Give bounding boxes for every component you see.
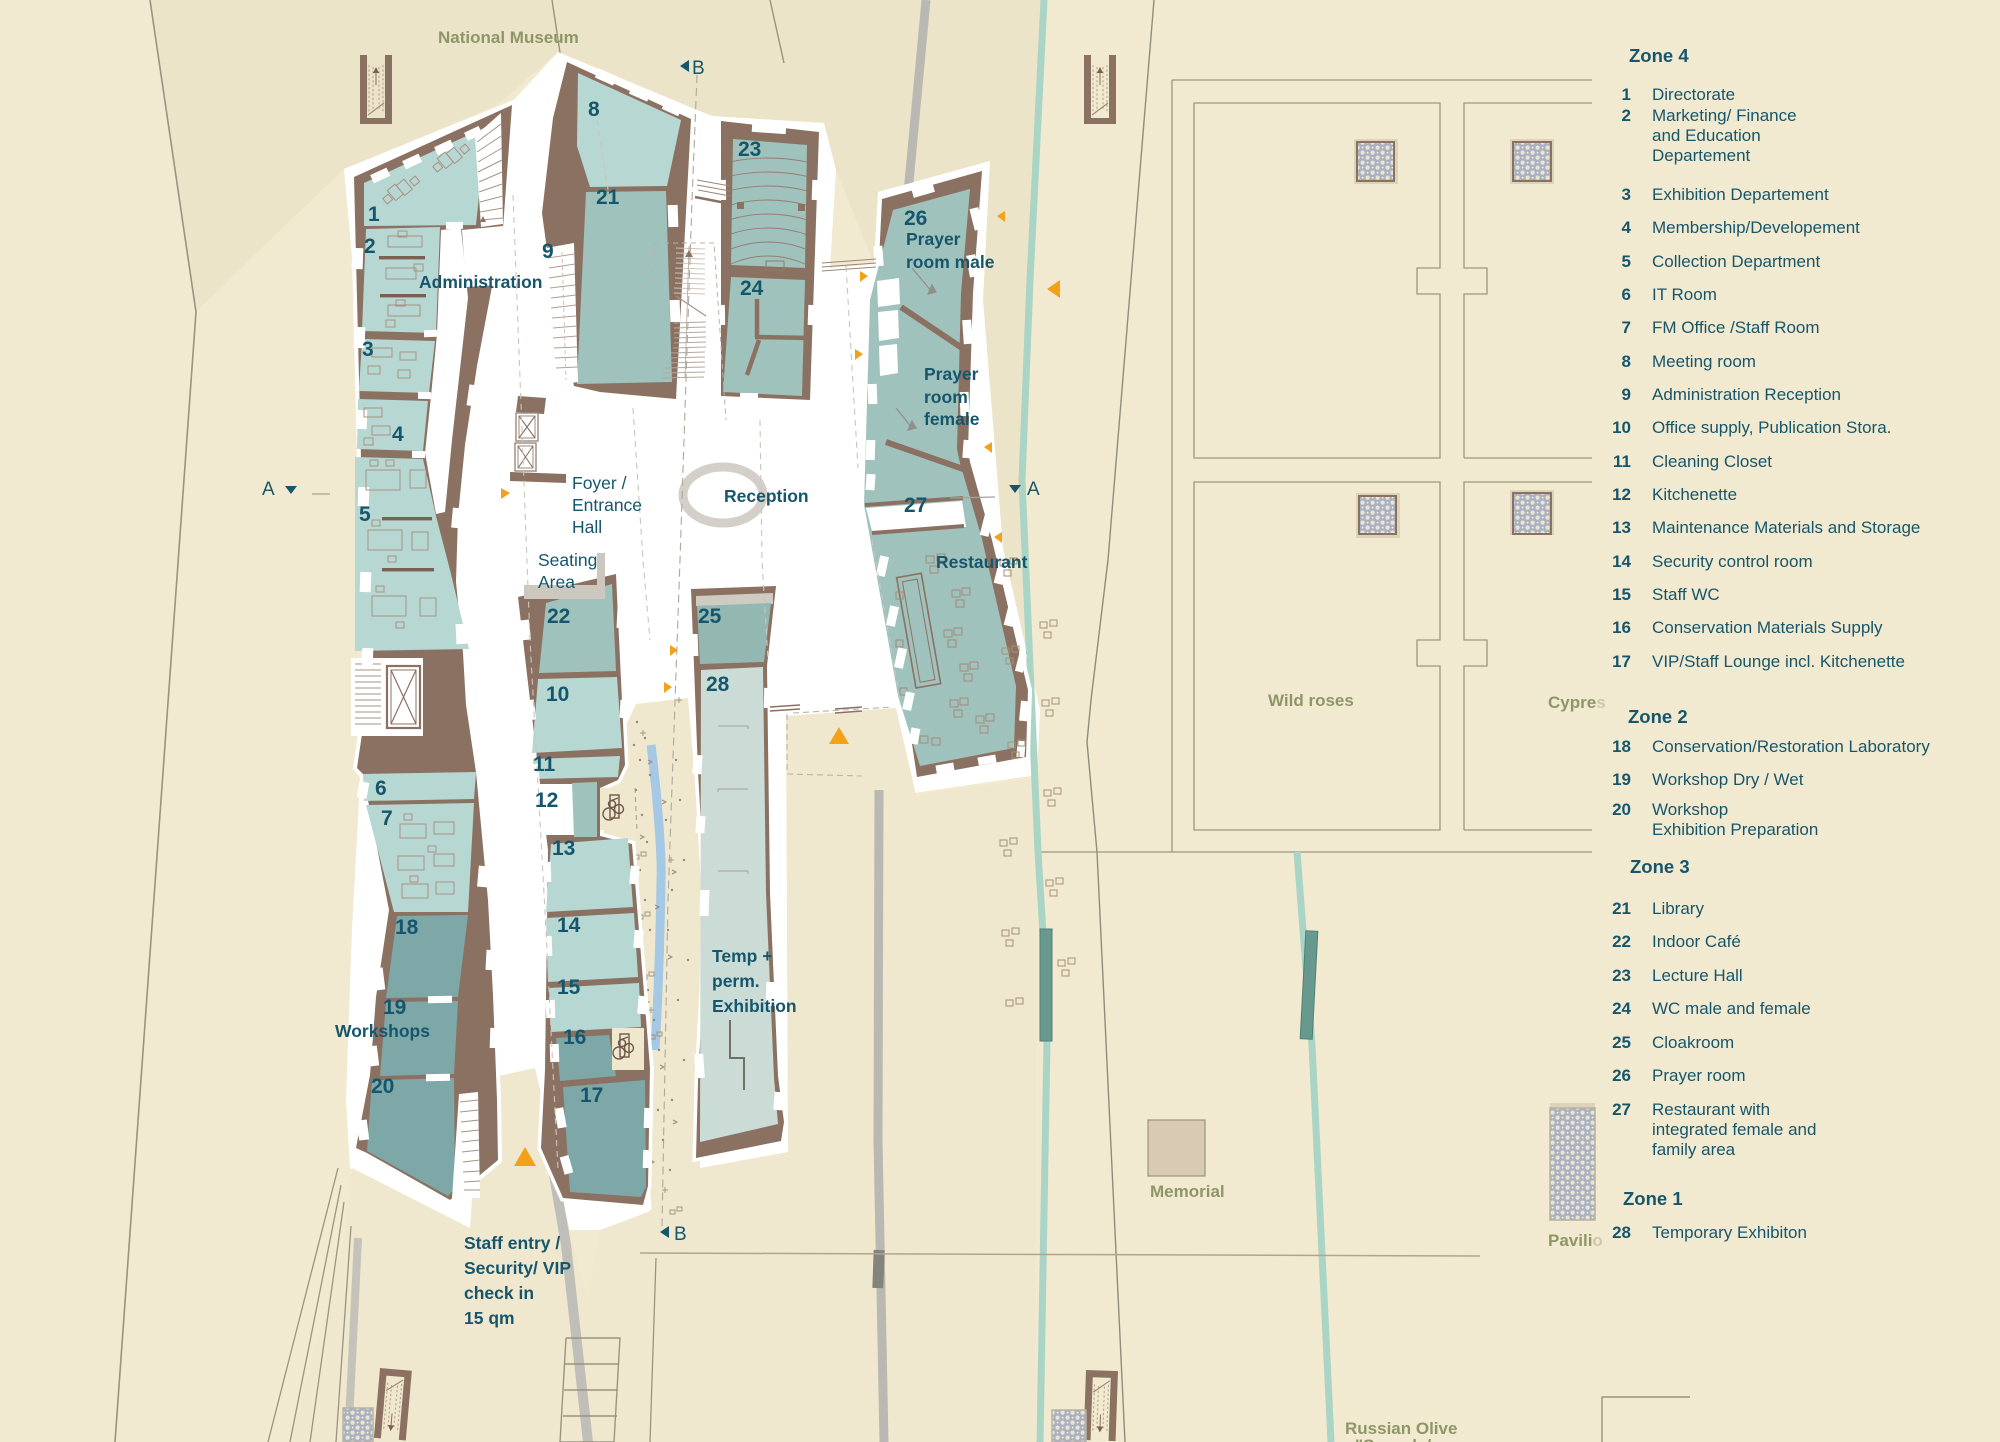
svg-text:19: 19 [383, 996, 406, 1019]
svg-text:Seating: Seating [538, 550, 597, 570]
svg-text:Foyer /: Foyer / [572, 473, 627, 493]
svg-text:5: 5 [1622, 252, 1631, 271]
svg-text:A: A [262, 479, 275, 500]
svg-text:VIP/Staff Lounge incl. Kitchen: VIP/Staff Lounge incl. Kitchenette [1652, 652, 1905, 671]
svg-text:Zone 1: Zone 1 [1623, 1188, 1683, 1209]
svg-text:25: 25 [698, 605, 722, 628]
svg-text:Zone 4: Zone 4 [1629, 45, 1689, 66]
svg-text:Security/ VIP: Security/ VIP [464, 1258, 571, 1278]
svg-text:perm.: perm. [712, 971, 760, 991]
svg-text:9: 9 [542, 240, 554, 263]
svg-text:27: 27 [904, 494, 927, 517]
svg-text:7: 7 [381, 807, 393, 830]
svg-text:11: 11 [1613, 452, 1631, 471]
svg-text:14: 14 [557, 914, 581, 937]
svg-text:family area: family area [1652, 1140, 1736, 1159]
svg-text:Kitchenette: Kitchenette [1652, 485, 1737, 504]
svg-text:17: 17 [1612, 652, 1631, 671]
svg-text:Prayer room: Prayer room [1652, 1066, 1746, 1085]
svg-text:24: 24 [740, 277, 764, 300]
svg-text:4: 4 [1622, 218, 1632, 237]
svg-text:16: 16 [1612, 618, 1631, 637]
svg-text:Temporary Exhibiton: Temporary Exhibiton [1652, 1223, 1807, 1242]
svg-text:Security control room: Security control room [1652, 552, 1813, 571]
svg-text:23: 23 [1612, 966, 1631, 985]
svg-text:12: 12 [535, 789, 558, 812]
svg-text:Library: Library [1652, 899, 1704, 918]
svg-text:9: 9 [1622, 385, 1631, 404]
svg-text:Prayer: Prayer [924, 364, 979, 384]
svg-text:22: 22 [1612, 932, 1631, 951]
svg-text:Workshop Dry / Wet: Workshop Dry / Wet [1652, 770, 1804, 789]
svg-text:Cleaning Closet: Cleaning Closet [1652, 452, 1772, 471]
svg-text:26: 26 [1612, 1066, 1631, 1085]
svg-text:B: B [674, 1224, 687, 1245]
svg-text:2: 2 [1622, 106, 1631, 125]
svg-text:26: 26 [904, 207, 927, 230]
svg-text:Zone 3: Zone 3 [1630, 856, 1690, 877]
svg-text:11: 11 [533, 753, 556, 776]
svg-text:Lecture Hall: Lecture Hall [1652, 966, 1743, 985]
svg-text:8: 8 [1622, 352, 1631, 371]
svg-text:Office supply, Publication Sto: Office supply, Publication Stora. [1652, 418, 1891, 437]
svg-text:13: 13 [552, 837, 575, 860]
svg-text:WC male and female: WC male and female [1652, 999, 1811, 1018]
svg-text:12: 12 [1612, 485, 1631, 504]
svg-text:3: 3 [362, 338, 374, 361]
svg-text:integrated female and: integrated female and [1652, 1120, 1816, 1139]
svg-text:Hall: Hall [572, 517, 602, 537]
svg-text:Indoor Café: Indoor Café [1652, 932, 1741, 951]
svg-text:Exhibition Departement: Exhibition Departement [1652, 185, 1829, 204]
svg-text:A: A [1027, 479, 1040, 500]
svg-text:16: 16 [563, 1026, 586, 1049]
svg-text:18: 18 [1612, 737, 1631, 756]
svg-text:7: 7 [1622, 318, 1631, 337]
svg-text:Conservation Materials Supply: Conservation Materials Supply [1652, 618, 1883, 637]
svg-text:4: 4 [392, 423, 404, 446]
svg-text:Reception: Reception [724, 486, 809, 506]
svg-text:Exhibition: Exhibition [712, 996, 797, 1016]
svg-text:20: 20 [1612, 800, 1631, 819]
svg-text:Prayer: Prayer [906, 229, 961, 249]
svg-text:21: 21 [1612, 899, 1631, 918]
svg-text:Conservation/Restoration Labor: Conservation/Restoration Laboratory [1652, 737, 1930, 756]
svg-text:8: 8 [588, 98, 600, 121]
svg-text:14: 14 [1612, 552, 1631, 571]
svg-text:13: 13 [1612, 518, 1631, 537]
svg-text:28: 28 [1612, 1223, 1631, 1242]
svg-text:5: 5 [359, 503, 371, 526]
svg-text:Staff entry /: Staff entry / [464, 1233, 560, 1253]
svg-text:Administration: Administration [419, 272, 542, 292]
svg-text:Maintenance Materials and Stor: Maintenance Materials and Storage [1652, 518, 1920, 537]
svg-text:17: 17 [580, 1084, 603, 1107]
svg-text:room: room [924, 387, 968, 407]
svg-text:25: 25 [1612, 1033, 1631, 1052]
svg-text:20: 20 [371, 1075, 394, 1098]
svg-text:Cypres: Cypres [1548, 693, 1606, 712]
svg-text:Area: Area [538, 572, 575, 592]
svg-text:check in: check in [464, 1283, 534, 1303]
svg-text:"Senzela/: "Senzela/ [1355, 1436, 1431, 1442]
svg-text:B: B [692, 58, 705, 79]
svg-text:Restaurant with: Restaurant with [1652, 1100, 1770, 1119]
svg-text:19: 19 [1612, 770, 1631, 789]
svg-text:Entrance: Entrance [572, 495, 642, 515]
svg-text:15: 15 [557, 976, 581, 999]
svg-text:Administration Reception: Administration Reception [1652, 385, 1841, 404]
svg-text:Wild roses: Wild roses [1268, 691, 1354, 710]
svg-text:15 qm: 15 qm [464, 1308, 515, 1328]
svg-text:21: 21 [596, 186, 620, 209]
svg-text:room male: room male [906, 252, 995, 272]
svg-text:Exhibition Preparation: Exhibition Preparation [1652, 820, 1818, 839]
svg-text:Marketing/ Finance: Marketing/ Finance [1652, 106, 1797, 125]
svg-text:and Education: and Education [1652, 126, 1761, 145]
svg-text:1: 1 [368, 203, 380, 226]
svg-text:10: 10 [1612, 418, 1631, 437]
svg-text:2: 2 [364, 235, 376, 258]
svg-text:Membership/Developement: Membership/Developement [1652, 218, 1860, 237]
svg-text:6: 6 [375, 777, 387, 800]
svg-text:Cloakroom: Cloakroom [1652, 1033, 1734, 1052]
svg-text:Staff WC: Staff WC [1652, 585, 1720, 604]
svg-text:15: 15 [1612, 585, 1631, 604]
svg-text:Directorate: Directorate [1652, 85, 1735, 104]
svg-text:Zone 2: Zone 2 [1628, 706, 1688, 727]
svg-text:Temp +: Temp + [712, 946, 772, 966]
svg-text:IT Room: IT Room [1652, 285, 1717, 304]
svg-text:22: 22 [547, 605, 570, 628]
svg-text:Memorial: Memorial [1150, 1182, 1225, 1201]
svg-text:National Museum: National Museum [438, 28, 579, 47]
svg-text:18: 18 [395, 916, 419, 939]
svg-text:Departement: Departement [1652, 146, 1751, 165]
svg-text:Workshop: Workshop [1652, 800, 1728, 819]
svg-text:Workshops: Workshops [335, 1021, 430, 1041]
svg-text:10: 10 [546, 683, 569, 706]
svg-text:Pavilio: Pavilio [1548, 1231, 1603, 1250]
svg-text:23: 23 [738, 138, 761, 161]
svg-text:24: 24 [1612, 999, 1631, 1018]
svg-text:Restaurant: Restaurant [936, 552, 1028, 572]
svg-text:28: 28 [706, 673, 730, 696]
svg-text:Meeting room: Meeting room [1652, 352, 1756, 371]
svg-text:Collection Department: Collection Department [1652, 252, 1820, 271]
svg-text:FM Office /Staff Room: FM Office /Staff Room [1652, 318, 1820, 337]
svg-text:6: 6 [1622, 285, 1631, 304]
svg-text:1: 1 [1622, 85, 1631, 104]
svg-text:female: female [924, 409, 980, 429]
svg-text:27: 27 [1612, 1100, 1631, 1119]
svg-text:3: 3 [1622, 185, 1631, 204]
